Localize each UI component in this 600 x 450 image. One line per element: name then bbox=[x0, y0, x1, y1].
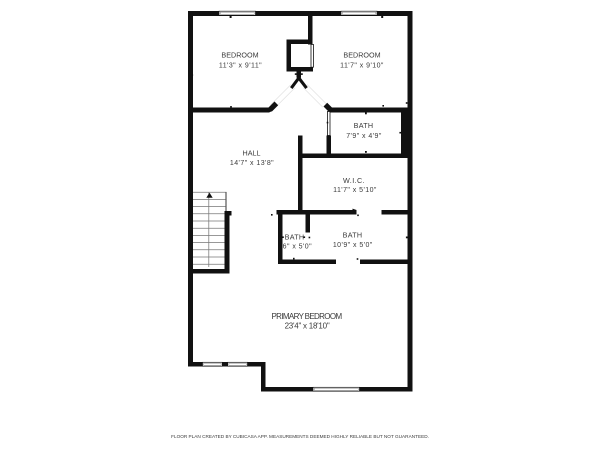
svg-text:7'9" x 4'9": 7'9" x 4'9" bbox=[346, 133, 382, 140]
svg-text:11'7" x 5'10": 11'7" x 5'10" bbox=[333, 187, 377, 194]
svg-text:BATH: BATH bbox=[354, 121, 374, 130]
svg-text:FLOOR PLAN CREATED BY CUBICASA: FLOOR PLAN CREATED BY CUBICASA APP. MEAS… bbox=[171, 434, 429, 439]
svg-text:BEDROOM: BEDROOM bbox=[343, 50, 380, 59]
svg-text:W.I.C.: W.I.C. bbox=[343, 176, 365, 185]
svg-text:BATH: BATH bbox=[343, 231, 363, 240]
svg-text:11'3" x 9'11": 11'3" x 9'11" bbox=[219, 62, 262, 69]
svg-text:14'7" x 13'8": 14'7" x 13'8" bbox=[230, 160, 274, 167]
svg-text:23'4" x 18'10": 23'4" x 18'10" bbox=[285, 321, 330, 330]
svg-text:PRIMARY BEDROOM: PRIMARY BEDROOM bbox=[272, 312, 343, 321]
svg-text:HALL: HALL bbox=[243, 149, 261, 158]
svg-text:BEDROOM: BEDROOM bbox=[221, 50, 258, 59]
svg-text:11'7" x 9'10": 11'7" x 9'10" bbox=[340, 62, 384, 69]
svg-text:10'9" x 5'0": 10'9" x 5'0" bbox=[333, 242, 373, 249]
svg-text:BATH: BATH bbox=[285, 233, 305, 242]
